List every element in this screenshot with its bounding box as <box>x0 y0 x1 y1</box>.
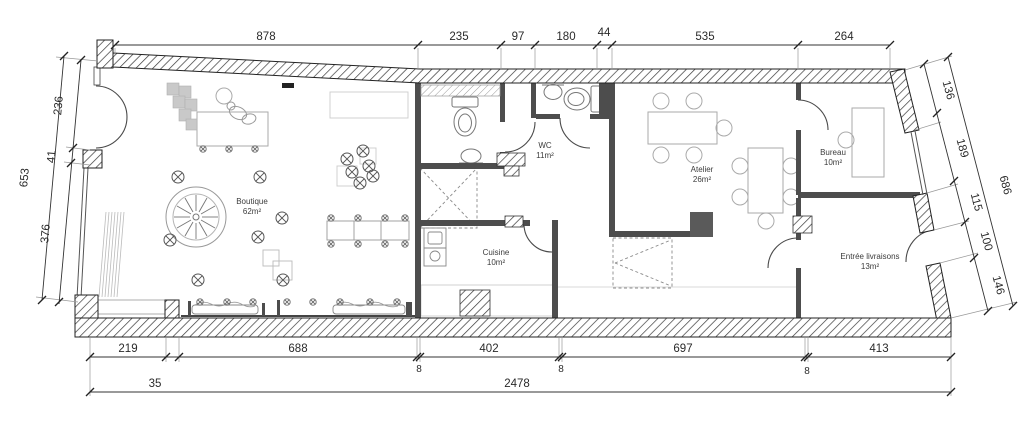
room-area: 26m² <box>693 175 712 184</box>
dim-label: 44 <box>598 27 611 39</box>
dim-label: 878 <box>256 31 275 43</box>
room-name: Boutique <box>236 197 268 206</box>
dim-label: 535 <box>695 31 714 43</box>
dim-label: 402 <box>479 343 498 355</box>
room-name: Cuisine <box>483 248 510 257</box>
dim-label: 180 <box>556 31 575 43</box>
dim-label: 697 <box>673 343 692 355</box>
dim-label: 688 <box>288 343 307 355</box>
dim-label: 41 <box>45 150 58 164</box>
dim-label: 35 <box>149 378 162 390</box>
dim-label: 97 <box>512 31 525 43</box>
dim-label: 219 <box>118 343 137 355</box>
insulated-wall-strip <box>421 85 500 96</box>
dim-label: 2478 <box>504 378 530 390</box>
dim-label: 376 <box>39 224 53 244</box>
room-area: 10m² <box>824 158 843 167</box>
dim-label: 8 <box>558 364 564 375</box>
dim-label: 413 <box>869 343 888 355</box>
room-area: 11m² <box>536 151 554 160</box>
dim-label: 8 <box>804 366 810 377</box>
room-area: 13m² <box>861 262 880 271</box>
floor-plan-canvas: 878 235 97 180 44 535 264 219 688 402 69… <box>0 0 1024 430</box>
dim-label: 8 <box>416 364 422 375</box>
room-name: Bureau <box>820 148 846 157</box>
room-area: 10m² <box>487 258 506 267</box>
room-name: WC <box>538 141 552 150</box>
floor-plan-drawing: 878 235 97 180 44 535 264 219 688 402 69… <box>0 0 1024 430</box>
room-name: Entrée livraisons <box>840 252 899 261</box>
dim-label: 235 <box>449 31 468 43</box>
room-name: Atelier <box>691 165 714 174</box>
dim-label: 653 <box>18 168 32 188</box>
dim-label: 236 <box>52 96 66 116</box>
room-area: 62m² <box>243 207 262 216</box>
dim-label: 264 <box>834 31 854 43</box>
